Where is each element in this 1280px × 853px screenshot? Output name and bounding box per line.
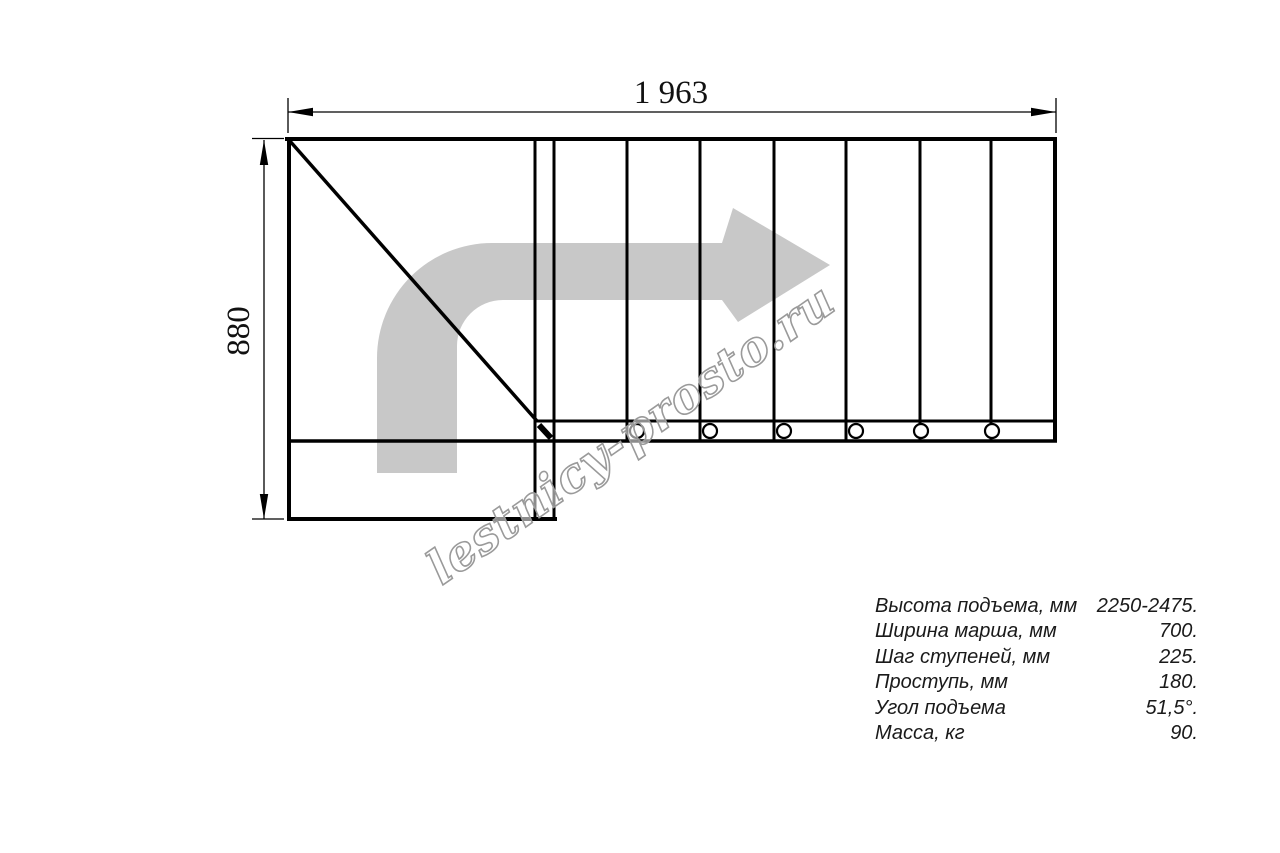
screw-hole — [985, 424, 999, 438]
newel-hatch — [539, 425, 551, 438]
spec-value: 700. — [1159, 619, 1198, 644]
staircase-drawing-page: 1 963 880 lestnicy-prosto.ru Высота подъ… — [0, 0, 1280, 853]
screw-hole — [914, 424, 928, 438]
spec-label: Ширина марша, мм — [875, 619, 1057, 644]
dimension-left: 880 — [221, 139, 284, 520]
screw-hole — [703, 424, 717, 438]
dimension-arrowhead-up — [260, 140, 268, 165]
spec-label: Проступь, мм — [875, 670, 1008, 695]
spec-value: 225. — [1159, 645, 1198, 670]
spec-row-flight-width: Ширина марша, мм 700. — [875, 619, 1198, 644]
spec-label: Масса, кг — [875, 721, 965, 746]
dimension-width-label: 1 963 — [634, 75, 708, 111]
screw-hole — [777, 424, 791, 438]
spec-row-angle: Угол подъема 51,5°. — [875, 696, 1198, 721]
spec-row-height: Высота подъема, мм 2250-2475. — [875, 594, 1198, 619]
spec-label: Шаг ступеней, мм — [875, 645, 1050, 670]
spec-value: 180. — [1159, 670, 1198, 695]
dimension-arrowhead-left — [288, 108, 313, 116]
spec-label: Угол подъема — [875, 696, 1006, 721]
spec-value: 2250-2475. — [1097, 594, 1198, 619]
specifications-table: Высота подъема, мм 2250-2475. Ширина мар… — [875, 594, 1198, 746]
dimension-arrowhead-down — [260, 494, 268, 519]
spec-row-tread: Проступь, мм 180. — [875, 670, 1198, 695]
dimension-top: 1 963 — [288, 75, 1056, 133]
spec-row-mass: Масса, кг 90. — [875, 721, 1198, 746]
spec-value: 90. — [1170, 721, 1198, 746]
dimension-height-label: 880 — [221, 306, 257, 356]
spec-row-step-pitch: Шаг ступеней, мм 225. — [875, 645, 1198, 670]
screw-hole — [849, 424, 863, 438]
dimension-arrowhead-right — [1031, 108, 1056, 116]
spec-value: 51,5°. — [1146, 696, 1198, 721]
spec-label: Высота подъема, мм — [875, 594, 1077, 619]
